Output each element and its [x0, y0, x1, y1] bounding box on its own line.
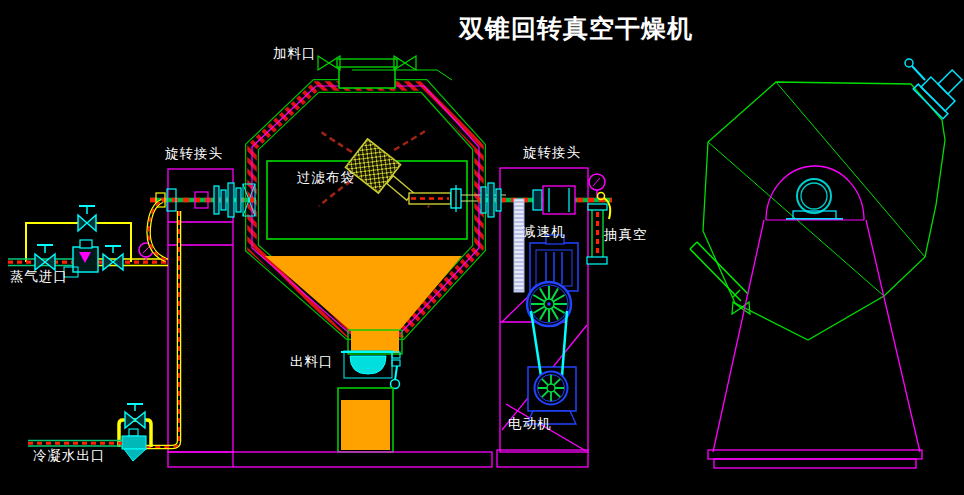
- drive-shaft-column: [514, 199, 524, 292]
- cad-canvas: 双锥回转真空干燥机 加料口 旋转接头 旋转接头 过滤布袋 蒸气进口 减速机 抽真…: [0, 0, 964, 495]
- big-pulley: [527, 282, 571, 326]
- dryer-drawing: 双锥回转真空干燥机 加料口 旋转接头 旋转接头 过滤布袋 蒸气进口 减速机 抽真…: [0, 0, 964, 495]
- label-rotary-joint-right: 旋转接头: [523, 144, 581, 160]
- label-motor: 电动机: [508, 415, 552, 431]
- label-condensate-outlet: 冷凝水出口: [33, 447, 106, 463]
- collection-bin: [338, 388, 393, 452]
- label-rotary-joint-left: 旋转接头: [165, 145, 223, 161]
- label-steam-inlet: 蒸气进口: [10, 268, 68, 284]
- page-title: 双锥回转真空干燥机: [458, 14, 693, 43]
- label-filter-bag: 过滤布袋: [297, 169, 355, 185]
- label-vacuum: 抽真空: [603, 226, 648, 242]
- label-discharge-port: 出料口: [290, 353, 334, 369]
- label-reducer: 减速机: [522, 223, 566, 239]
- label-feed-port: 加料口: [273, 45, 317, 61]
